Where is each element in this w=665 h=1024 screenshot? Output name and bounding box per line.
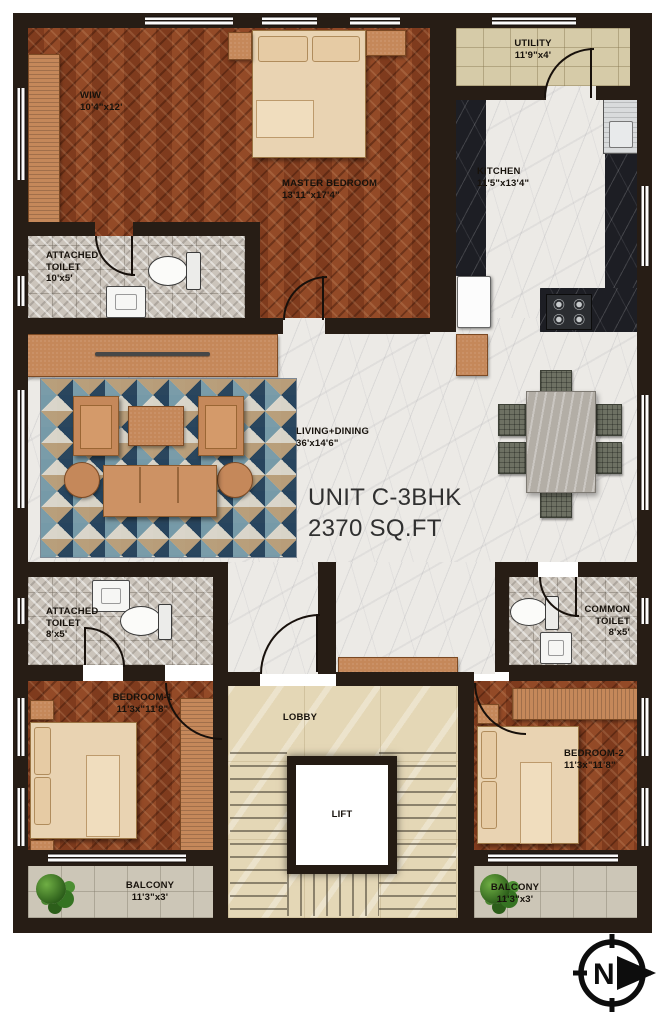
room-dims: 8'x5' — [46, 629, 110, 641]
room-name: ATTACHED TOILET — [46, 606, 110, 629]
coffee-table — [128, 406, 184, 446]
toilet-bowl — [148, 256, 188, 286]
toilet-tank — [186, 252, 201, 290]
tv — [95, 352, 210, 356]
room-dims: 11'3x"11'8" — [564, 760, 624, 772]
sofa-cushion-line — [177, 467, 179, 503]
wall-common-toilet — [495, 562, 509, 672]
window — [350, 16, 400, 26]
armchair — [198, 396, 244, 456]
wall-utility — [596, 86, 637, 100]
nightstand — [366, 30, 406, 56]
room-dims: 13'11"x17'4" — [282, 190, 377, 202]
room-name: LIVING+DINING — [296, 426, 369, 438]
window — [262, 16, 317, 26]
bedroom1-label: BEDROOM-1 11'3x"11'8" — [95, 692, 190, 715]
wall-common-toilet — [578, 562, 637, 577]
dining-table — [526, 391, 596, 493]
bedroom2-label: BEDROOM-2 11'3x"11'8" — [564, 748, 624, 771]
bedroom2-wardrobe — [512, 688, 639, 720]
wall-lobby-top — [228, 672, 260, 686]
wall-toilet1 — [28, 222, 95, 236]
pillow — [34, 727, 51, 775]
wash-basin — [106, 286, 146, 318]
room-name: COMMON TOILET — [572, 604, 630, 627]
room-name: ATTACHED TOILET — [46, 250, 110, 273]
pillow — [34, 777, 51, 825]
north-arrow-icon — [617, 956, 656, 990]
window — [640, 395, 650, 510]
window-balcony1 — [48, 853, 186, 863]
room-name: UTILITY — [468, 38, 598, 50]
wall-toilet1 — [133, 222, 245, 236]
room-name: BALCONY — [470, 882, 560, 894]
wall-entry-stub — [318, 562, 336, 674]
kitchen-sink — [603, 92, 639, 154]
common-toilet-label: COMMON TOILET 8'x5' — [572, 604, 630, 639]
toilet-bowl — [510, 598, 548, 626]
wall-bottom — [13, 918, 652, 933]
sofa — [103, 465, 217, 517]
unit-area: 2370 SQ.FT — [308, 513, 462, 544]
master-bedroom-label: MASTER BEDROOM 13'11"x17'4" — [282, 178, 377, 201]
wall-bedroom1-top — [123, 665, 165, 681]
wall-bedroom2-top — [509, 665, 637, 681]
bed-blanket — [256, 100, 314, 138]
room-dims: 11'5"x13'4" — [477, 178, 529, 190]
room-name: WIW — [80, 90, 123, 102]
fridge — [457, 276, 491, 328]
side-table — [217, 462, 253, 498]
utility-label: UTILITY 11'9"x4' — [468, 38, 598, 61]
plant — [36, 874, 66, 904]
wall-toilet2 — [28, 562, 213, 577]
room-dims: 10'x5' — [46, 273, 110, 285]
sofa-cushion-line — [139, 467, 141, 503]
room-dims: 11'3"x3' — [470, 894, 560, 906]
wall-utility — [456, 86, 546, 100]
gas-stove — [546, 294, 592, 330]
master-door-leaf — [322, 276, 324, 320]
kitchen-label: KITCHEN 11'5"x13'4" — [477, 166, 529, 189]
window — [492, 16, 576, 26]
dining-chair — [498, 404, 526, 436]
armchair — [73, 396, 119, 456]
bed-blanket — [86, 755, 120, 837]
north-compass: N — [565, 928, 660, 1023]
window-balcony2 — [488, 853, 618, 863]
wall-toilet1 — [245, 222, 260, 318]
room-dims: 10'4"x12' — [80, 102, 123, 114]
room-name: LOBBY — [265, 712, 335, 724]
balcony2-label: BALCONY 11'3"x3' — [470, 882, 560, 905]
floor-plan: LIFT — [0, 0, 665, 1024]
attached-toilet1-label: ATTACHED TOILET 10'x5' — [46, 250, 110, 285]
window — [640, 598, 650, 624]
pillow — [481, 731, 497, 779]
lift: LIFT — [287, 756, 397, 874]
side-table — [64, 462, 100, 498]
room-name: BEDROOM-1 — [95, 692, 190, 704]
lobby-label: LOBBY — [265, 712, 335, 724]
dining-chair — [498, 442, 526, 474]
wall-master-kitchen — [430, 13, 456, 332]
nightstand — [228, 32, 252, 60]
unit-name: UNIT C-3BHK — [308, 482, 462, 513]
room-dims: 11'3"x3' — [100, 892, 200, 904]
pillow — [481, 781, 497, 829]
nightstand — [30, 700, 54, 720]
room-dims: 11'3x"11'8" — [95, 704, 190, 716]
unit-title: UNIT C-3BHK 2370 SQ.FT — [308, 482, 462, 544]
compass-north-letter: N — [593, 958, 615, 991]
room-name: KITCHEN — [477, 166, 529, 178]
window — [16, 276, 26, 306]
window — [16, 788, 26, 846]
lift-label: LIFT — [332, 809, 353, 821]
stairs-left — [230, 752, 287, 914]
wall-segment — [630, 28, 637, 86]
window — [640, 698, 650, 756]
bed-blanket — [520, 762, 552, 844]
pillow — [258, 36, 308, 62]
room-dims: 11'9"x4' — [468, 50, 598, 62]
room-name: BEDROOM-2 — [564, 748, 624, 760]
toilet-tank — [158, 604, 172, 640]
wall-bedroom1-top — [28, 665, 83, 681]
dining-chair — [540, 492, 572, 518]
window — [16, 698, 26, 756]
window — [16, 390, 26, 508]
room-name: BALCONY — [100, 880, 200, 892]
wall-master-living — [325, 318, 430, 334]
wall-toilet2 — [213, 562, 228, 672]
wash-basin — [540, 632, 572, 664]
wiw-wardrobe — [28, 54, 60, 236]
balcony1-label: BALCONY 11'3"x3' — [100, 880, 200, 903]
attached-toilet2-label: ATTACHED TOILET 8'x5' — [46, 606, 110, 641]
entrance-door-leaf — [316, 614, 318, 672]
wiw-label: WIW 10'4"x12' — [80, 90, 123, 113]
living-dining-label: LIVING+DINING 36'x14'6" — [296, 426, 369, 449]
window — [145, 16, 233, 26]
room-name: MASTER BEDROOM — [282, 178, 377, 190]
dining-chair — [596, 404, 622, 436]
room-dims: 8'x5' — [572, 627, 630, 639]
wall-master-living — [28, 318, 283, 334]
pillow — [312, 36, 360, 62]
window — [640, 788, 650, 846]
dining-chair — [596, 442, 622, 474]
side-cabinet — [456, 334, 488, 376]
toilet1-door-leaf — [131, 236, 133, 276]
room-dims: 36'x14'6" — [296, 438, 369, 450]
window — [16, 598, 26, 624]
window — [16, 88, 26, 180]
wall-lobby-top — [336, 672, 458, 686]
toilet-bowl — [120, 606, 162, 636]
window — [640, 186, 650, 266]
